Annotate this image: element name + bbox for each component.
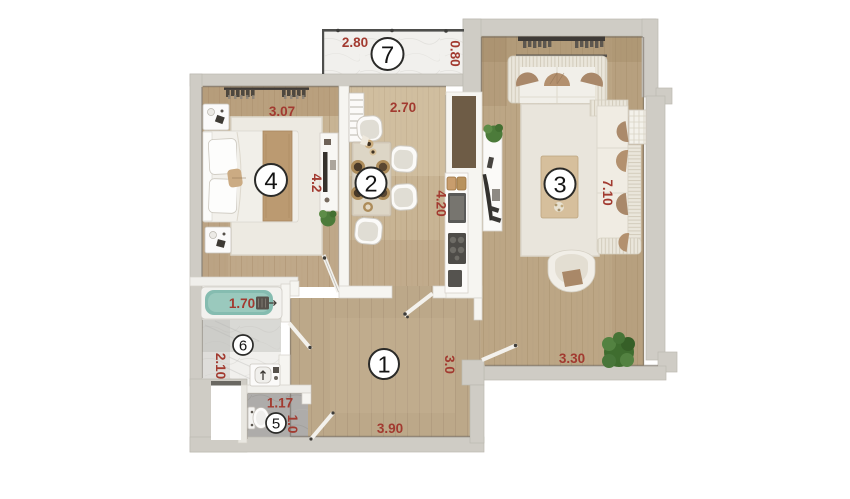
svg-text:5: 5 — [272, 416, 280, 433]
svg-text:1.0: 1.0 — [285, 415, 300, 434]
svg-text:2.70: 2.70 — [390, 100, 416, 115]
svg-text:7: 7 — [381, 42, 394, 69]
svg-text:4.2: 4.2 — [309, 174, 324, 193]
svg-text:0.80: 0.80 — [448, 40, 463, 66]
svg-text:6: 6 — [239, 338, 247, 355]
svg-text:7.10: 7.10 — [600, 179, 615, 205]
svg-text:1.17: 1.17 — [267, 396, 293, 411]
svg-text:1.70: 1.70 — [229, 296, 255, 311]
svg-text:2: 2 — [364, 171, 377, 197]
svg-text:3.30: 3.30 — [559, 351, 585, 366]
svg-text:3.0: 3.0 — [442, 355, 457, 374]
svg-text:2.80: 2.80 — [342, 35, 368, 50]
svg-text:3.07: 3.07 — [269, 104, 295, 119]
svg-text:1: 1 — [377, 352, 390, 378]
svg-text:3.90: 3.90 — [377, 421, 403, 436]
svg-text:3: 3 — [553, 172, 566, 198]
svg-text:4: 4 — [264, 168, 277, 195]
svg-text:2.10: 2.10 — [213, 353, 228, 379]
svg-text:4.20: 4.20 — [434, 190, 449, 216]
